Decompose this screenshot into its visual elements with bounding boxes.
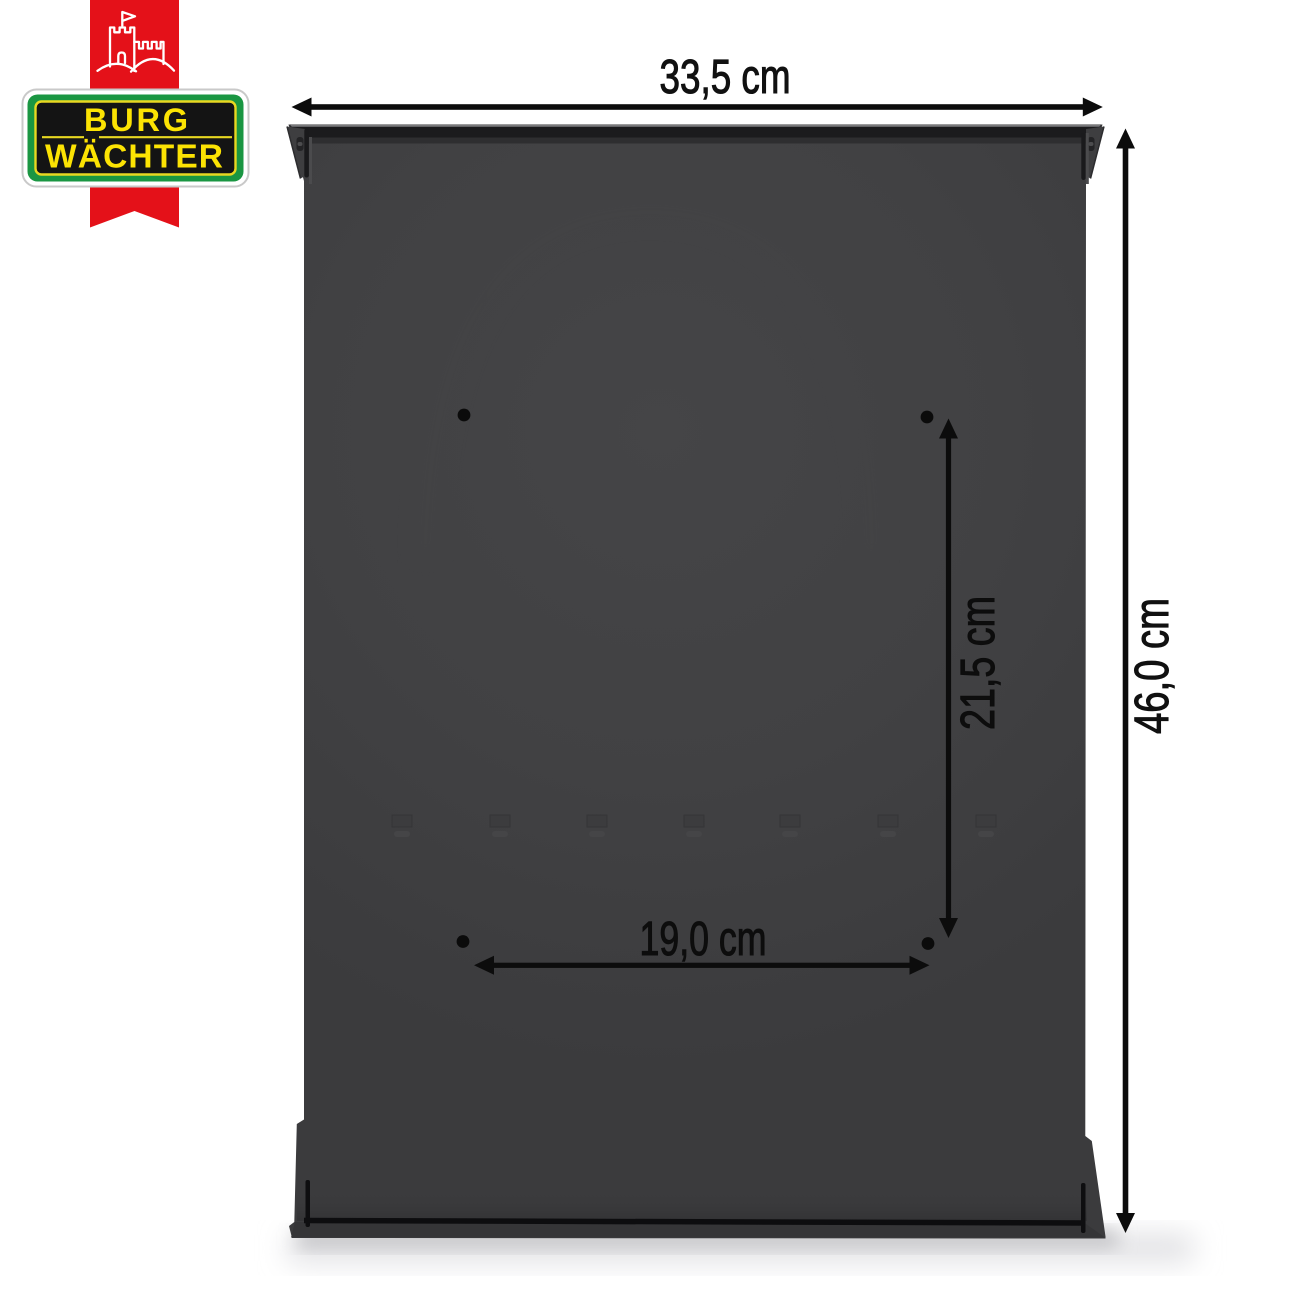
svg-text:WÄCHTER: WÄCHTER [45,139,223,176]
svg-text:19,0 cm: 19,0 cm [640,912,767,966]
svg-text:33,5 cm: 33,5 cm [660,50,791,104]
svg-text:21,5 cm: 21,5 cm [951,596,1005,730]
svg-text:BURG: BURG [84,102,188,138]
svg-text:46,0 cm: 46,0 cm [1125,598,1179,734]
